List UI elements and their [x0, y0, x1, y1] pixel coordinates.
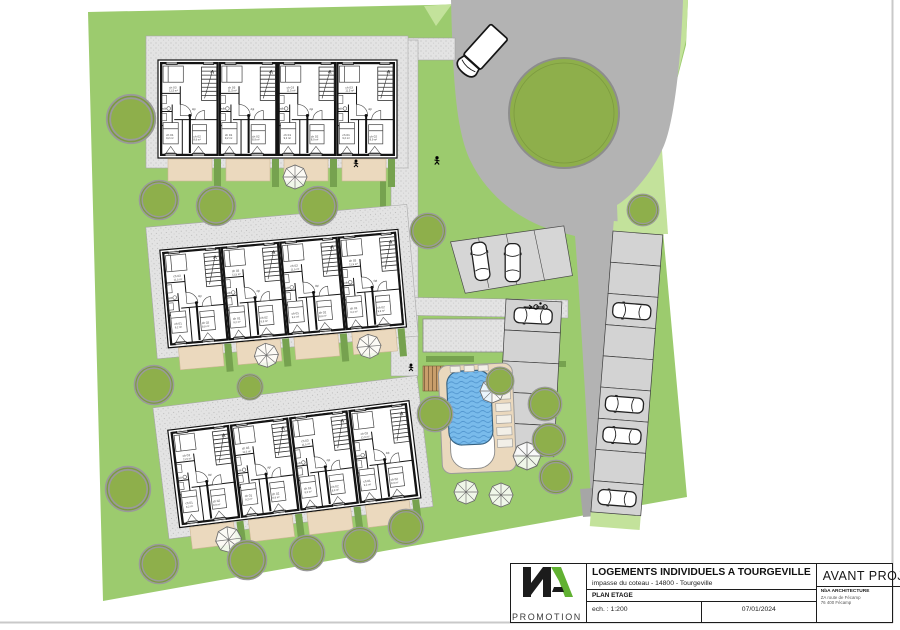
title-block: PROMOTION LOGEMENTS INDIVIDUELS A TOURGE…	[510, 563, 893, 623]
architect-address-2: 76 400 Fécamp	[821, 600, 900, 606]
architect-info: NbA ARCHITECTURE ZA route de Fécamp 76 4…	[817, 587, 900, 622]
parked-car	[504, 244, 522, 282]
roundabout-island	[509, 58, 619, 168]
hedge	[426, 356, 474, 362]
nla-logo	[521, 565, 577, 605]
date-label: 07/01/2024	[701, 602, 816, 622]
promoter-logo-cell: PROMOTION	[511, 564, 587, 622]
scale-label: ech. : 1:200	[587, 602, 701, 622]
project-address: impasse du coteau - 14800 - Tourgeville	[587, 579, 816, 590]
title-block-right: AVANT PROJET NbA ARCHITECTURE ZA route d…	[816, 564, 900, 622]
building-row-1	[146, 36, 408, 189]
drawing-name: PLAN ETAGE	[587, 590, 816, 602]
project-status: AVANT PROJET	[817, 564, 900, 587]
project-title: LOGEMENTS INDIVIDUELS A TOURGEVILLE	[587, 564, 816, 579]
boules-court	[423, 319, 507, 352]
site-plan: ch 03 11,5 m² sdb dgt ch 01 9,2 m² ch 02…	[0, 0, 900, 630]
title-block-center: LOGEMENTS INDIVIDUELS A TOURGEVILLE impa…	[587, 564, 816, 622]
terrace-parasol	[283, 165, 307, 189]
promoter-label: PROMOTION	[512, 612, 582, 622]
drawing-sheet: ch 03 11,5 m² sdb dgt ch 01 9,2 m² ch 02…	[0, 0, 900, 630]
